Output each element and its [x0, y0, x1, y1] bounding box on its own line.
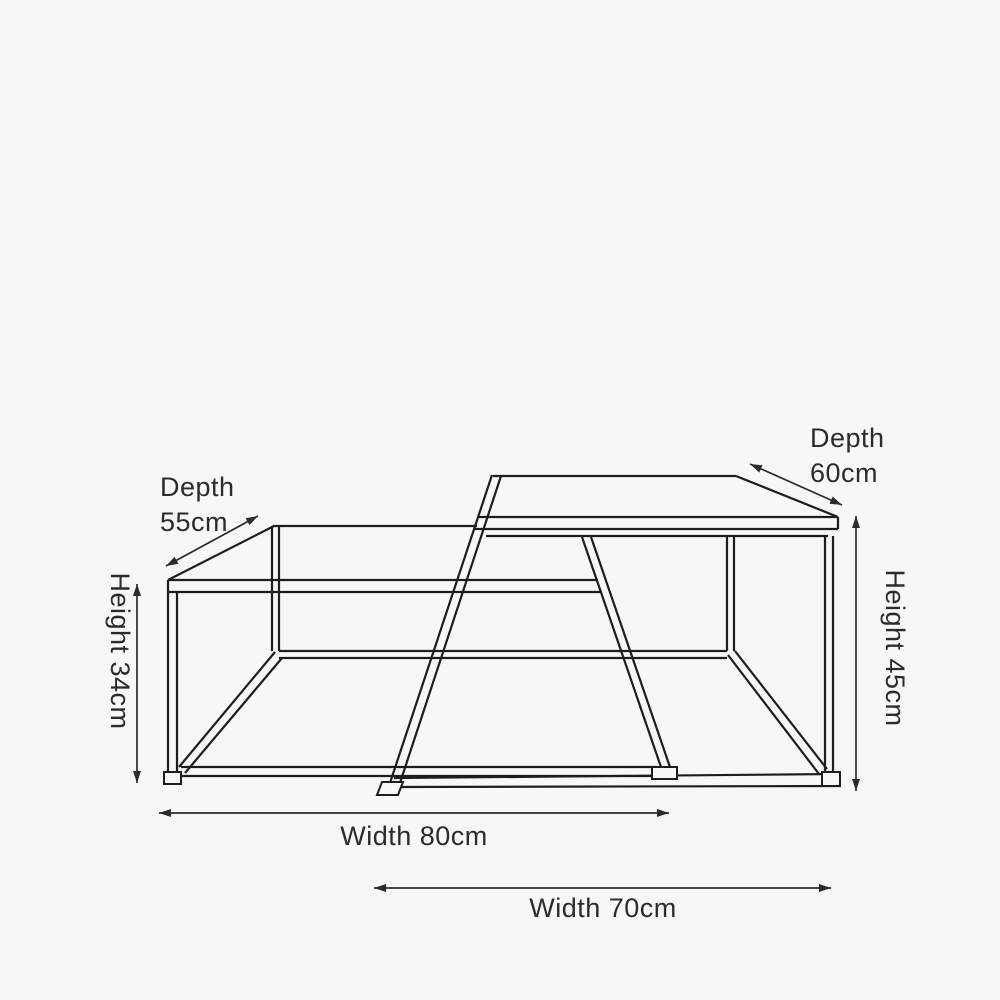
product-dimension-diagram: Depth 55cm Depth 60cm Height 34cm Height…: [0, 0, 1000, 1000]
small-table-front-left-foot: [164, 772, 181, 784]
dimension-height-large: Height 45cm: [856, 516, 910, 791]
large-table-top: [475, 476, 838, 529]
large-table-front-right-foot: [822, 772, 840, 786]
dimension-depth-large: Depth 60cm: [750, 423, 885, 505]
nesting-tables-drawing: Depth 55cm Depth 60cm Height 34cm Height…: [0, 0, 1000, 1000]
small-table-legs: [168, 526, 279, 772]
width-large-label: Width 70cm: [529, 893, 677, 923]
dimension-height-small: Height 34cm: [105, 572, 137, 783]
width-small-label: Width 80cm: [340, 821, 488, 851]
dimension-depth-small: Depth 55cm: [160, 472, 258, 566]
small-table-stretchers: [179, 651, 727, 776]
large-table-slanted-legs: [388, 475, 671, 789]
depth-small-label: Depth: [160, 472, 235, 502]
large-table-front-left-foot: [377, 782, 403, 795]
large-table: [377, 475, 841, 795]
depth-large-label: Depth: [810, 423, 885, 453]
large-table-back-left-foot: [652, 767, 677, 779]
large-table-vertical-legs: [727, 536, 833, 772]
height-small-label: Height 34cm: [105, 572, 135, 729]
dimension-width-large: Width 70cm: [374, 888, 831, 923]
height-large-label: Height 45cm: [880, 569, 910, 726]
small-table: [164, 526, 727, 784]
depth-small-value: 55cm: [160, 507, 228, 537]
dimension-width-small: Width 80cm: [159, 813, 669, 851]
depth-large-value: 60cm: [810, 458, 878, 488]
